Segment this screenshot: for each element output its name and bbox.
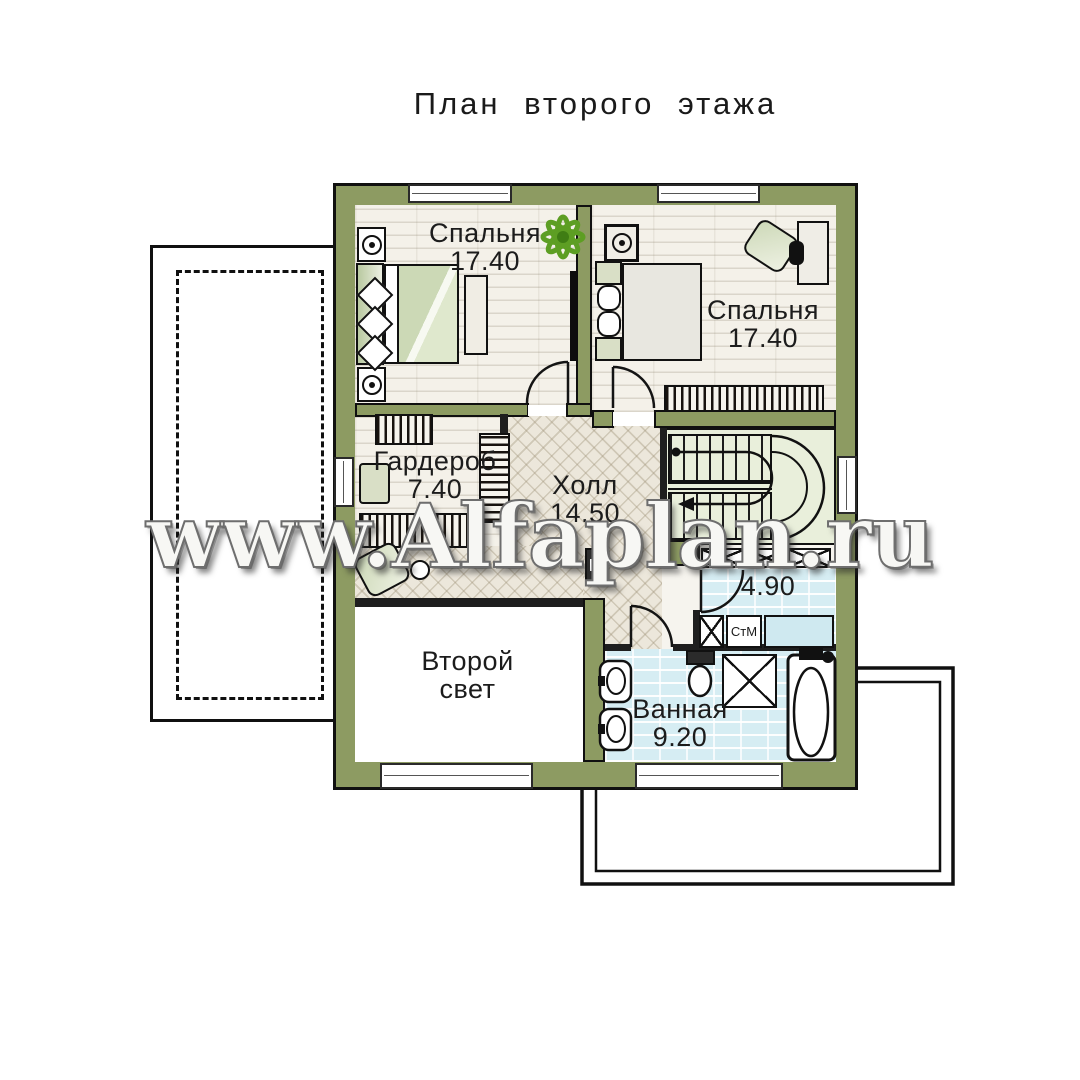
bedroom-left-wall-b [566, 403, 592, 417]
wardrobe-bedroom-right [664, 385, 824, 412]
washing-machine: СтМ [726, 615, 762, 648]
lamp-icon [362, 235, 382, 255]
floor-plan-page: План второго этажа [0, 0, 1080, 1080]
page-title: План второго этажа [333, 86, 858, 122]
speaker-icon [612, 233, 632, 253]
washing-machine-label: СтМ [731, 624, 757, 639]
bedroom-left-door-threshold [528, 405, 566, 416]
wardrobe-rack-top [375, 414, 433, 445]
tv-panel [570, 271, 578, 361]
window-bottom-right [635, 763, 783, 789]
nightstand-left-top [357, 227, 386, 262]
second-light-top-wall [355, 598, 583, 607]
bed-left-blanket [397, 264, 459, 364]
dresser-left [464, 275, 488, 355]
second-light-label: Второй свет [380, 648, 555, 703]
pillow [597, 285, 621, 311]
stair-flight-upper [668, 434, 772, 482]
lamp-icon [362, 375, 382, 395]
laundry-counter [764, 615, 834, 648]
bedroom-right-label: Спальня 17.40 [688, 297, 838, 352]
nightstand-left-bottom [357, 367, 386, 402]
bedroom-right-wall-b [654, 410, 836, 428]
desk-chair [789, 241, 804, 265]
wall-art [604, 224, 639, 262]
second-light-right-wall [583, 598, 605, 762]
pillow [597, 311, 621, 337]
bedroom-left-label: Спальня 17.40 [400, 220, 570, 275]
bedroom-right-door-threshold [613, 412, 654, 426]
window-top-right [657, 184, 760, 203]
watermark: www.Alfaplan.ru [146, 484, 934, 588]
bedroom-right-wall-a [592, 410, 614, 428]
window-bottom-left [380, 763, 533, 789]
party-wall [576, 205, 592, 405]
laundry-basket [699, 615, 724, 648]
bathroom-label: Ванная 9.20 [615, 696, 745, 751]
bathroom-top-wall-a [605, 644, 631, 651]
nightstand-right-bottom [595, 337, 622, 361]
nightstand-right-top [595, 261, 622, 285]
window-top-left [408, 184, 512, 203]
